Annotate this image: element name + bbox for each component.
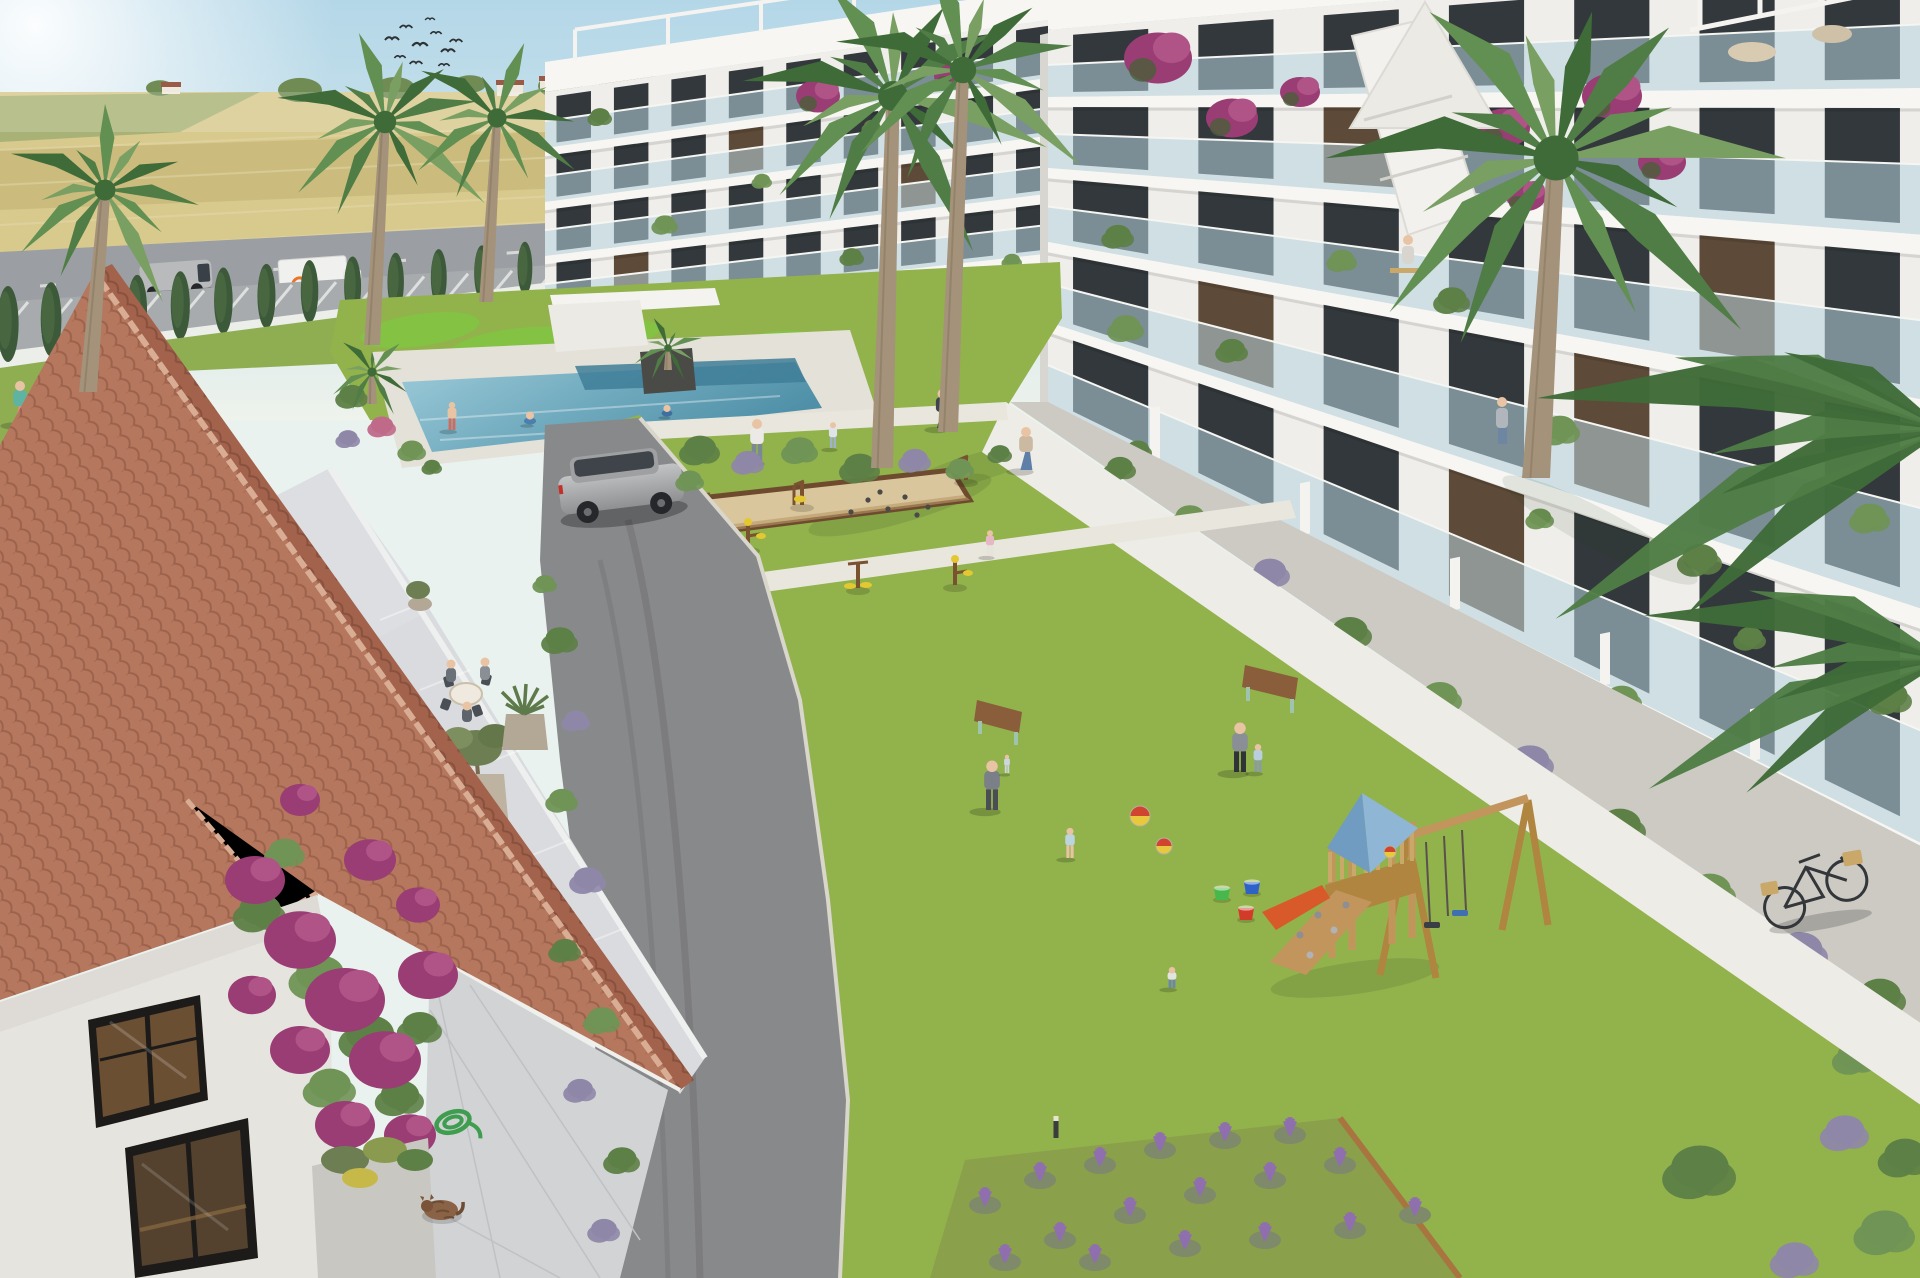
toy-bucket	[1237, 905, 1255, 923]
cypress-tree	[171, 271, 190, 339]
beach-ball	[1384, 846, 1396, 858]
terrace-sofa	[1728, 42, 1776, 62]
architectural-render: Aerial architectural rendering of a new-…	[0, 0, 1920, 1278]
petanque-boule	[902, 494, 907, 499]
bougainvillea	[270, 1026, 330, 1074]
wall-planter	[312, 1137, 436, 1278]
bougainvillea	[225, 856, 285, 904]
toy-bucket	[1243, 879, 1261, 897]
bougainvillea	[396, 887, 440, 922]
bougainvillea	[228, 976, 276, 1014]
bougainvillea	[315, 1101, 375, 1149]
bougainvillea	[264, 911, 336, 969]
cypress-tree	[518, 242, 533, 295]
bougainvillea	[349, 1031, 421, 1089]
beach-ball	[1130, 806, 1150, 826]
petanque-boule	[914, 512, 919, 517]
bougainvillea	[280, 784, 320, 816]
shrub	[335, 430, 360, 448]
beach-ball	[1156, 838, 1172, 854]
privacy-wall	[1600, 632, 1610, 686]
small-pot	[406, 581, 432, 611]
diner	[480, 658, 490, 681]
bougainvillea	[1124, 33, 1192, 84]
bougainvillea	[305, 968, 385, 1032]
cypress-tree	[257, 264, 275, 328]
bougainvillea	[398, 951, 458, 999]
petanque-boule	[865, 497, 870, 502]
swing-seat	[1424, 922, 1440, 928]
pool-wall	[548, 300, 648, 352]
petanque-boule	[885, 506, 890, 511]
bougainvillea	[1280, 77, 1320, 107]
swing-seat	[1452, 910, 1468, 916]
diner	[462, 702, 472, 723]
scene-canvas: Aerial architectural rendering of a new-…	[0, 0, 1920, 1278]
bougainvillea	[344, 839, 396, 881]
privacy-wall	[1450, 557, 1460, 611]
petanque-boule	[877, 489, 882, 494]
bollard-light	[1054, 1116, 1059, 1138]
privacy-wall	[1300, 481, 1310, 535]
bougainvillea	[1206, 99, 1258, 138]
diner	[446, 660, 456, 683]
cypress-tree	[214, 268, 233, 334]
cypress-tree	[301, 260, 319, 323]
toy-bucket	[1213, 885, 1231, 903]
petanque-boule	[848, 509, 853, 514]
petanque-boule	[925, 504, 930, 509]
potted-yucca	[502, 684, 548, 750]
